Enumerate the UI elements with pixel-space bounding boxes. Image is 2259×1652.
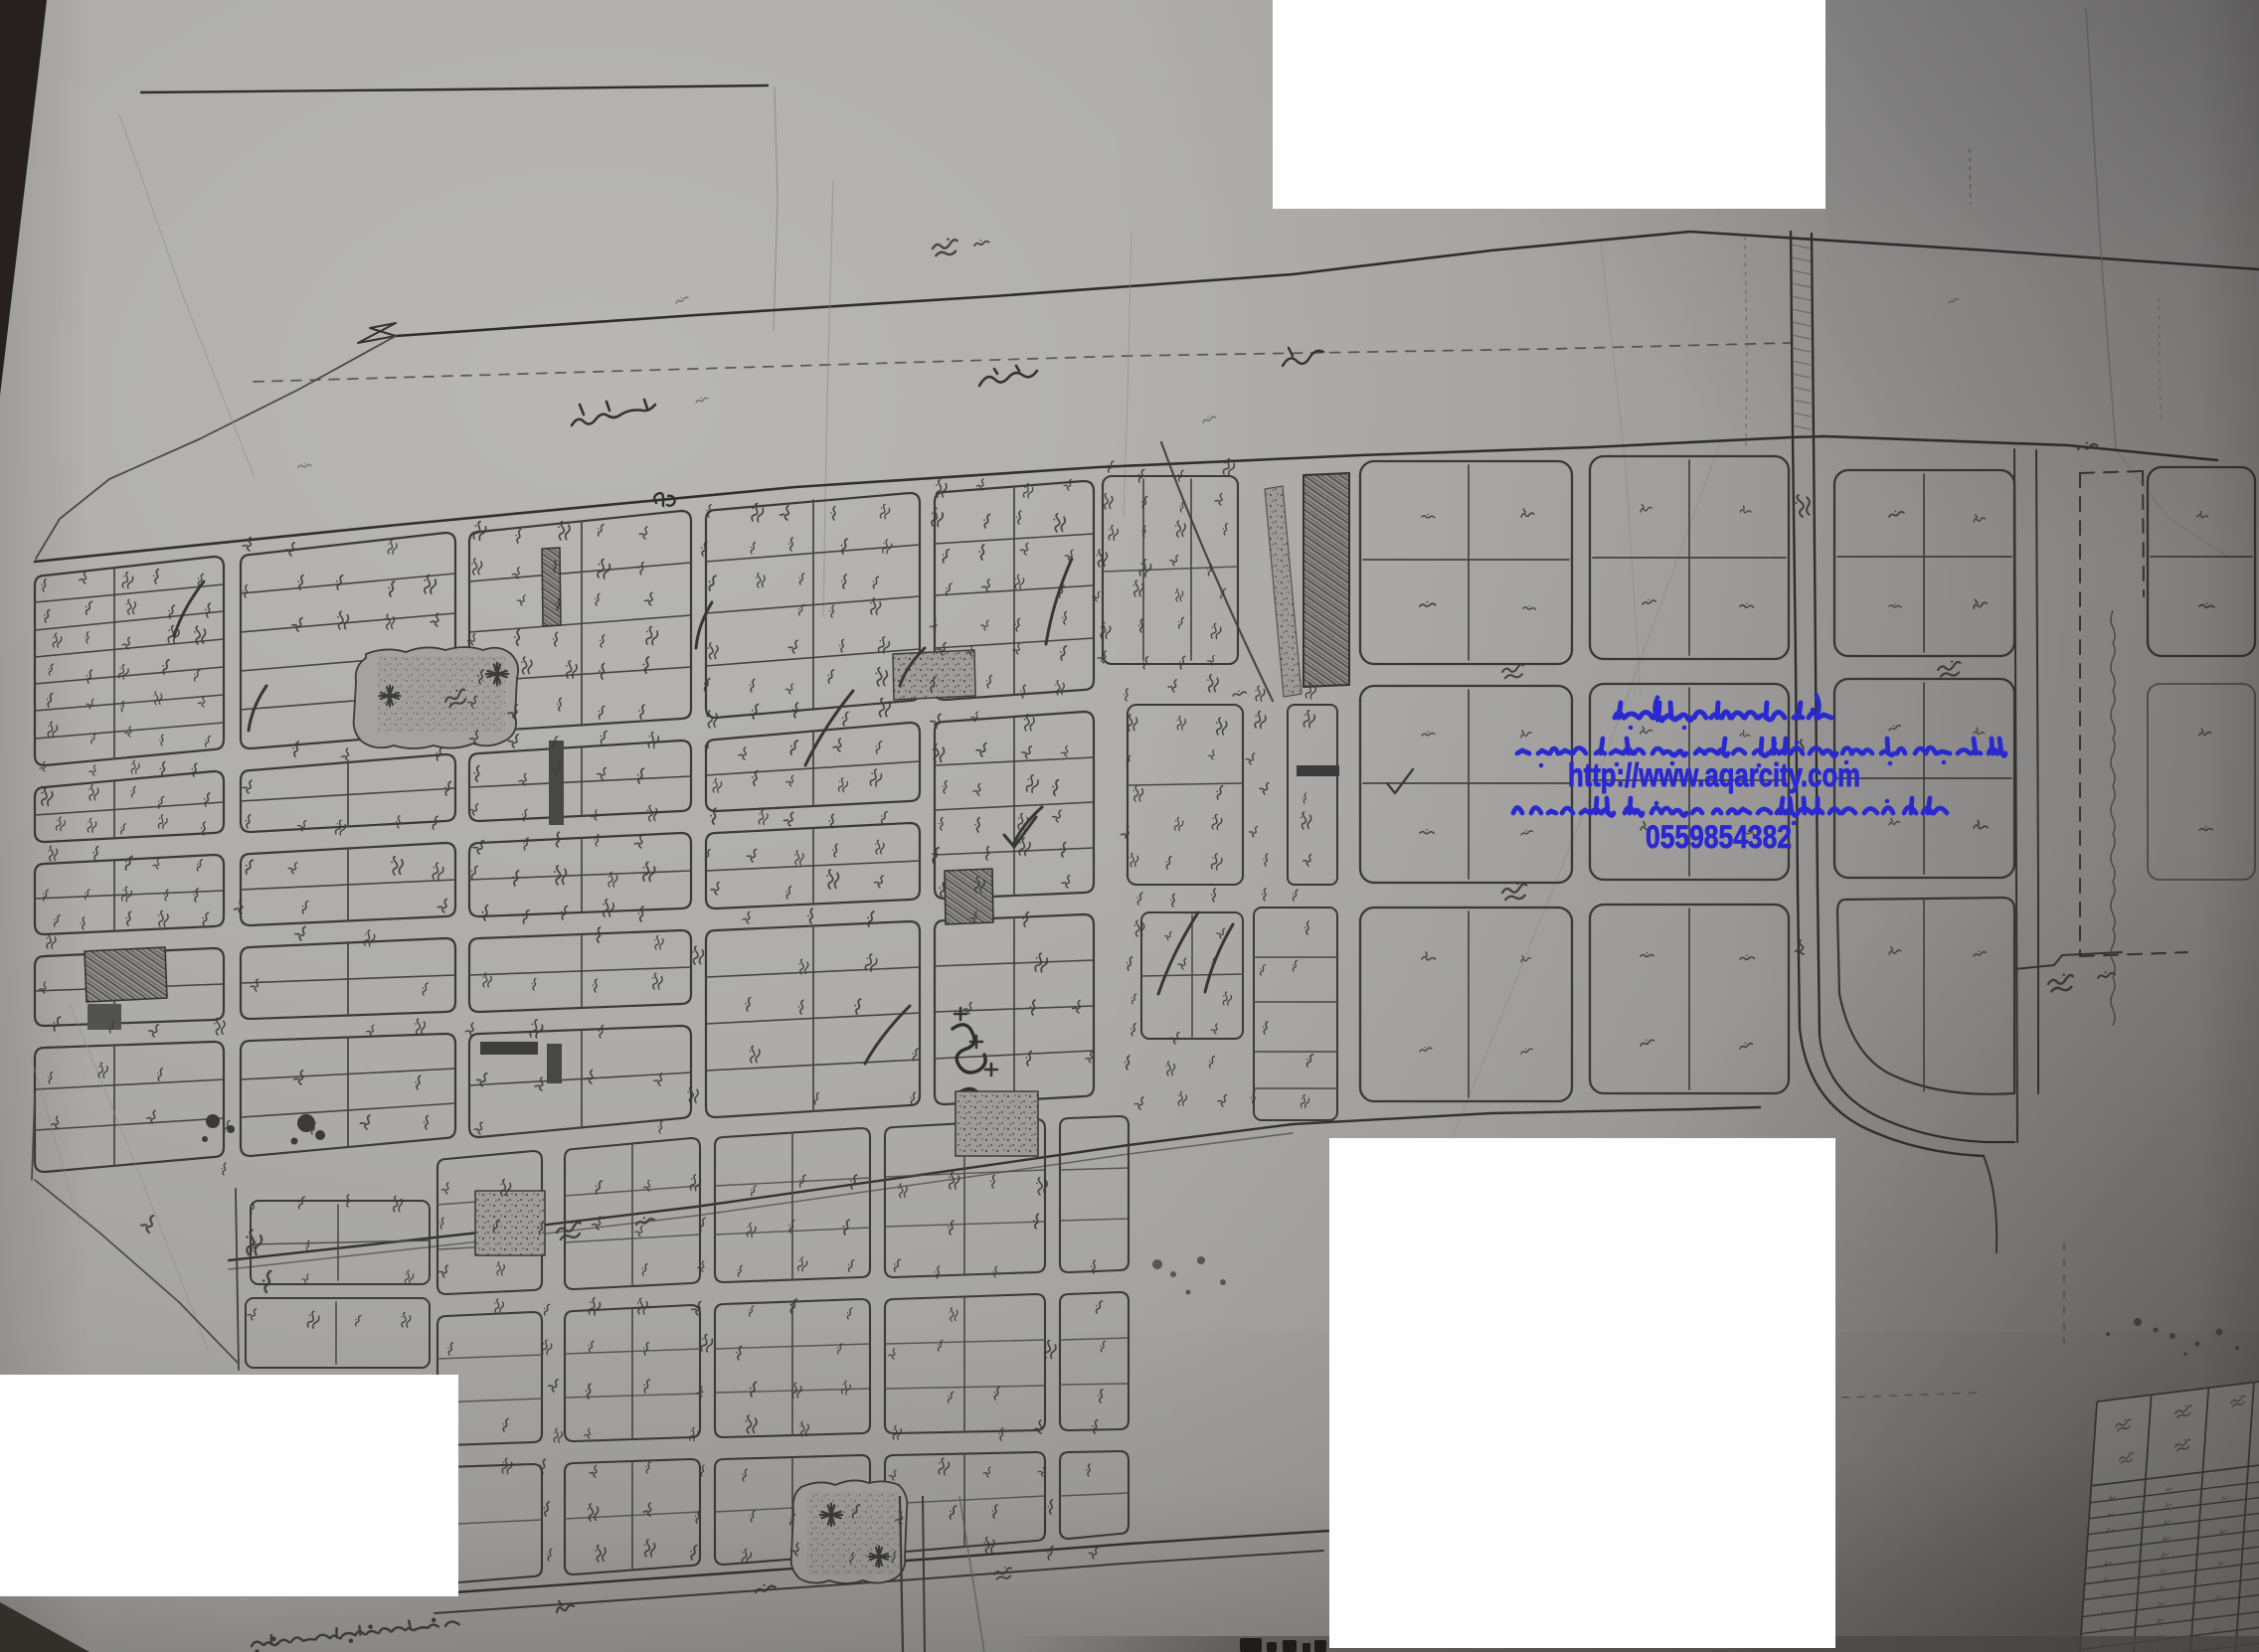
svg-text:http://www.aqarcity.com: http://www.aqarcity.com (1568, 756, 1860, 793)
svg-text:0559854382: 0559854382 (1646, 819, 1792, 855)
